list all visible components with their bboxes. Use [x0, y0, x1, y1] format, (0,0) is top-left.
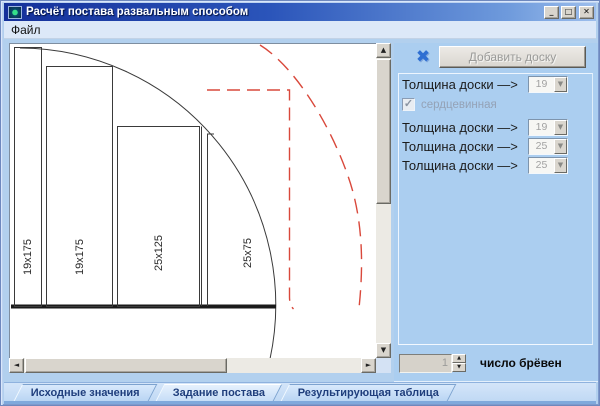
vertical-scrollbar[interactable]: ▲ ▼ — [376, 43, 391, 358]
menu-file[interactable]: Файл — [4, 22, 48, 38]
chevron-down-icon[interactable]: ▼ — [554, 158, 567, 173]
board-thickness-label: Толщина доски —> — [402, 77, 518, 92]
minimize-button[interactable]: _ — [544, 6, 559, 19]
board-row-1: Толщина доски —> 19 ▼ — [399, 76, 592, 94]
tab-result-table[interactable]: Результирующая таблица — [281, 384, 457, 401]
horizontal-scroll-thumb[interactable] — [25, 358, 227, 373]
core-board-checkbox[interactable]: ✓ — [402, 98, 415, 111]
board-thickness-group: Толщина доски —> 19 ▼ ✓ сердцевинная Тол… — [398, 73, 593, 345]
tab-label: Исходные значения — [31, 385, 140, 401]
delete-board-icon[interactable]: ✖ — [411, 47, 435, 67]
scroll-down-button[interactable]: ▼ — [376, 343, 391, 358]
board-thickness-label: Толщина доски —> — [402, 158, 518, 173]
tabbar: Исходные значения Задание постава Резуль… — [4, 382, 596, 401]
board-row-2: Толщина доски —> 19 ▼ — [399, 119, 592, 137]
scroll-up-button[interactable]: ▲ — [376, 43, 391, 58]
window-title: Расчёт постава развальным способом — [26, 6, 542, 18]
board-4-size-label: 25x75 — [242, 238, 254, 268]
board-row-4: Толщина доски —> 25 ▼ — [399, 157, 592, 175]
board-thickness-label: Толщина доски —> — [402, 120, 518, 135]
board-2-size-label: 19x175 — [74, 239, 86, 275]
tab-label: Задание постава — [173, 385, 265, 401]
board-thickness-combobox-2[interactable]: 19 ▼ — [528, 119, 568, 136]
combobox-value: 25 — [529, 158, 554, 173]
titlebar[interactable]: Расчёт постава развальным способом _ □ ✕ — [4, 3, 596, 21]
combobox-value: 19 — [529, 77, 554, 92]
sawing-diagram-canvas[interactable]: 19x175 19x175 25x125 25x75 — [9, 43, 376, 358]
sawing-diagram: 19x175 19x175 25x125 25x75 — [10, 44, 377, 359]
app-window: Расчёт постава развальным способом _ □ ✕… — [0, 0, 600, 406]
core-board-row: ✓ сердцевинная — [399, 97, 592, 112]
board-thickness-combobox-3[interactable]: 25 ▼ — [528, 138, 568, 155]
scroll-right-button[interactable]: ► — [361, 358, 376, 373]
app-icon — [8, 6, 22, 19]
log-count-stepper[interactable]: ▲ ▼ — [452, 354, 466, 373]
close-button[interactable]: ✕ — [579, 6, 594, 19]
combobox-value: 25 — [529, 139, 554, 154]
combobox-value: 19 — [529, 120, 554, 135]
board-thickness-combobox-1[interactable]: 19 ▼ — [528, 76, 568, 93]
board-thickness-label: Толщина доски —> — [402, 139, 518, 154]
board-3-size-label: 25x125 — [153, 235, 165, 271]
tab-initial-values[interactable]: Исходные значения — [14, 384, 157, 401]
scrollbar-corner — [376, 358, 391, 373]
log-count-row: 1 ▲ ▼ число брёвен — [394, 354, 598, 374]
log-count-input[interactable]: 1 — [399, 354, 452, 373]
spin-down-button[interactable]: ▼ — [452, 363, 466, 372]
log-count-label: число брёвен — [480, 356, 562, 370]
bottom-strip — [4, 401, 596, 404]
tab-set-layout[interactable]: Задание постава — [155, 384, 282, 401]
board-1-size-label: 19x175 — [22, 239, 34, 275]
chevron-down-icon[interactable]: ▼ — [554, 139, 567, 154]
scroll-left-button[interactable]: ◄ — [9, 358, 24, 373]
board-settings-panel: ✖ Добавить доску Толщина доски —> 19 ▼ ✓… — [394, 43, 598, 382]
diagram-background — [10, 44, 377, 359]
spin-up-button[interactable]: ▲ — [452, 354, 466, 363]
menubar: Файл — [4, 21, 596, 39]
tab-label: Результирующая таблица — [298, 385, 439, 401]
core-board-checkbox-label: сердцевинная — [421, 99, 497, 111]
maximize-button[interactable]: □ — [561, 6, 576, 19]
board-thickness-combobox-4[interactable]: 25 ▼ — [528, 157, 568, 174]
chevron-down-icon[interactable]: ▼ — [554, 77, 567, 92]
horizontal-scrollbar[interactable]: ◄ ► — [9, 358, 376, 373]
vertical-scroll-thumb[interactable] — [376, 59, 391, 204]
chevron-down-icon[interactable]: ▼ — [554, 120, 567, 135]
board-row-3: Толщина доски —> 25 ▼ — [399, 138, 592, 156]
add-board-button[interactable]: Добавить доску — [439, 46, 586, 68]
